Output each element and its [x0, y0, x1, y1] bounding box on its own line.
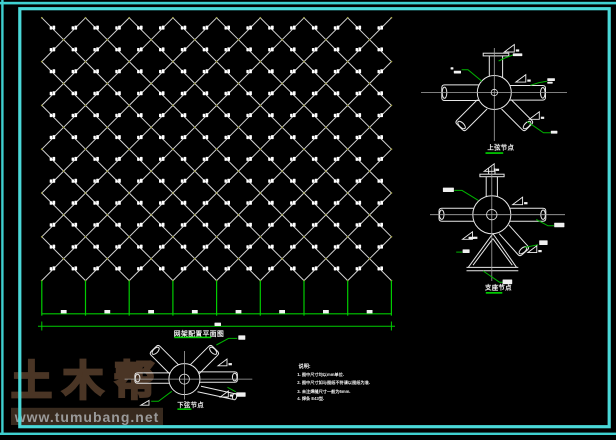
svg-text:上弦节点: 上弦节点 — [487, 143, 514, 152]
svg-text:4. 焊条 E43型.: 4. 焊条 E43型. — [297, 395, 324, 402]
svg-text:下弦节点: 下弦节点 — [177, 400, 204, 409]
svg-text:土木帮: 土木帮 — [11, 358, 166, 404]
svg-text:说明:: 说明: — [299, 362, 311, 370]
svg-text:2. 图中尺寸如与图纸不符请以图纸为准.: 2. 图中尺寸如与图纸不符请以图纸为准. — [297, 379, 370, 386]
svg-text:3. 未注焊缝尺寸一般为6mm.: 3. 未注焊缝尺寸一般为6mm. — [297, 388, 350, 395]
svg-text:www.tumubang.net: www.tumubang.net — [14, 409, 160, 425]
svg-text:支座节点: 支座节点 — [484, 283, 512, 292]
svg-text:1. 图中尺寸均以mm单位.: 1. 图中尺寸均以mm单位. — [297, 371, 344, 378]
